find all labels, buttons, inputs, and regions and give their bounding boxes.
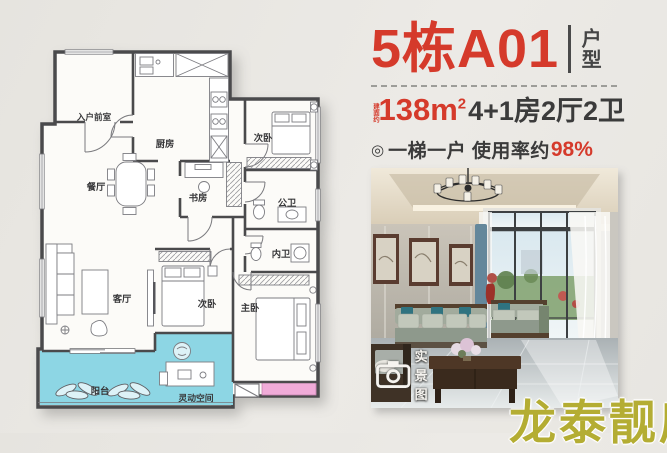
brand-watermark: 龙泰靓房 xyxy=(509,384,667,453)
feature-text: 一梯一户 使用率约 xyxy=(388,136,550,163)
room-label-balcony: 阳台 xyxy=(91,385,110,396)
room-label-public-bath: 公卫 xyxy=(278,198,297,208)
room-label-master: 主卧 xyxy=(241,302,260,313)
room-label-living: 客厅 xyxy=(112,293,132,304)
area-number: 138m xyxy=(379,92,458,127)
title-row: 5栋A01 户型 xyxy=(371,22,618,76)
room-label-bedroom3: 次卧 xyxy=(198,298,217,309)
usage-rate-value: 98% xyxy=(551,138,593,162)
floorplan: 入户前室 厨房 餐厅 书房 次卧 公卫 内卫 客厅 次卧 主卧 阳台 灵动空间 xyxy=(30,4,365,419)
area-prefix-label: 建面约 xyxy=(371,103,378,123)
room-label-dining: 餐厅 xyxy=(86,181,106,192)
bay-window-zone xyxy=(262,382,316,395)
camera-icon xyxy=(376,360,411,388)
room-label-bedroom2: 次卧 xyxy=(254,132,273,143)
flyer: 入户前室 厨房 餐厅 书房 次卧 公卫 内卫 客厅 次卧 主卧 阳台 灵动空间 … xyxy=(0,0,667,433)
room-label-ensuite-bath: 内卫 xyxy=(272,248,291,259)
area-value: 138m2 xyxy=(379,94,467,125)
spec-row: 建面约 138m2 4+1房2厅2卫 xyxy=(371,94,618,125)
layout-text: 4+1房2厅2卫 xyxy=(468,98,625,125)
photo-badge: 实景图 xyxy=(376,346,438,403)
room-label-entry: 入户前室 xyxy=(77,111,112,122)
room-label-flex-space: 灵动空间 xyxy=(178,392,213,403)
title-tag: 户型 xyxy=(579,28,599,70)
room-label-study: 书房 xyxy=(189,192,208,203)
dashed-divider xyxy=(371,85,617,87)
info-panel: 5栋A01 户型 建面约 138m2 4+1房2厅2卫 ◎ 一梯一户 使用率约 … xyxy=(371,0,618,433)
building-unit-title: 5栋A01 xyxy=(371,22,559,76)
title-divider xyxy=(568,25,571,73)
bullseye-icon: ◎ xyxy=(371,141,384,159)
living-room-photo: 实景图 xyxy=(371,168,618,408)
room-label-kitchen: 厨房 xyxy=(156,138,175,149)
photo-badge-label: 实景图 xyxy=(415,346,438,403)
feature-row: ◎ 一梯一户 使用率约 98% xyxy=(371,136,618,163)
floorplan-svg: 入户前室 厨房 餐厅 书房 次卧 公卫 内卫 客厅 次卧 主卧 阳台 灵动空间 xyxy=(30,4,365,419)
area-superscript: 2 xyxy=(458,96,466,113)
